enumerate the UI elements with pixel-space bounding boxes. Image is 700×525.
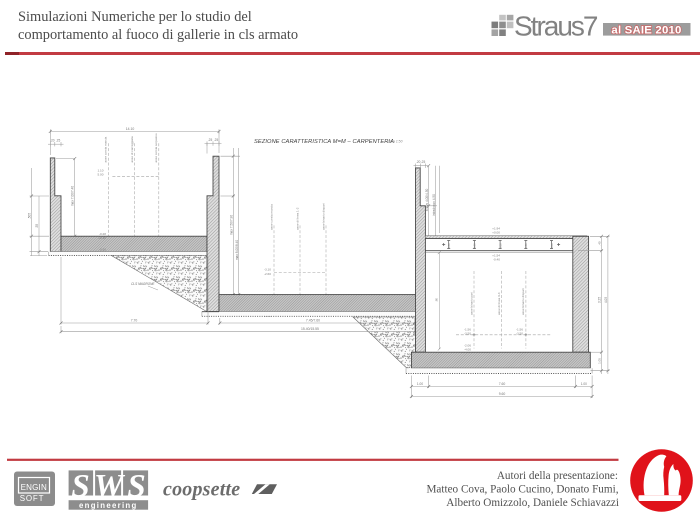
svg-text:.40: .40 <box>598 241 602 246</box>
svg-text:.55: .55 <box>35 224 39 229</box>
svg-text:1.00: 1.00 <box>417 382 423 386</box>
svg-text:Matteo Cova, Paolo Cucino, Don: Matteo Cova, Paolo Cucino, Donato Fumi, <box>426 484 618 496</box>
svg-text:.25: .25 <box>56 139 61 143</box>
svg-text:asse di linea 1-2: asse di linea 1-2 <box>295 207 299 230</box>
svg-text:asse binario pari: asse binario pari <box>469 292 473 315</box>
svg-text:al SAIE 2010: al SAIE 2010 <box>611 25 681 37</box>
svg-text:14.10: 14.10 <box>126 127 135 131</box>
svg-text:W: W <box>94 469 126 505</box>
svg-text:+0.00: +0.00 <box>492 230 500 234</box>
svg-text:scala 1:50: scala 1:50 <box>387 140 403 144</box>
svg-text:max 7.50/7.90: max 7.50/7.90 <box>229 215 233 235</box>
svg-text:.80: .80 <box>435 298 439 303</box>
svg-text:.25: .25 <box>214 138 219 142</box>
svg-text:scavo 4.00/4.50: scavo 4.00/4.50 <box>425 189 429 212</box>
svg-text:5.00: 5.00 <box>97 173 103 177</box>
svg-text:1.00: 1.00 <box>498 243 502 249</box>
svg-text:engineering: engineering <box>79 501 138 510</box>
svg-text:asse corsia sorpasso: asse corsia sorpasso <box>154 133 158 162</box>
svg-text:max 7.00/7.40: max 7.00/7.40 <box>71 186 75 206</box>
svg-text:ENGIN: ENGIN <box>21 483 47 492</box>
svg-text:-4.00: -4.00 <box>464 347 471 351</box>
svg-text:7.60: 7.60 <box>499 382 506 386</box>
svg-text:max 8.00/8.40: max 8.00/8.40 <box>235 240 239 260</box>
svg-text:1.00: 1.00 <box>473 243 477 249</box>
svg-text:7.45/7.60: 7.45/7.60 <box>306 318 320 322</box>
svg-text:CLS MAGRONE: CLS MAGRONE <box>131 282 155 286</box>
svg-text:SOFT: SOFT <box>20 494 45 503</box>
svg-text:.25: .25 <box>208 138 213 142</box>
svg-text:1.00: 1.00 <box>550 243 554 249</box>
svg-text:intradosso 4.50: intradosso 4.50 <box>432 194 436 216</box>
svg-text:1.00: 1.00 <box>524 243 528 249</box>
svg-text:S: S <box>127 469 145 505</box>
svg-text:-2.60: -2.60 <box>264 272 271 276</box>
svg-text:asse corsia marcia: asse corsia marcia <box>104 136 108 162</box>
svg-text:-3.50: -3.50 <box>516 331 523 335</box>
svg-text:1.00: 1.00 <box>447 243 451 249</box>
svg-text:1.00: 1.00 <box>581 382 587 386</box>
svg-text:coopsette: coopsette <box>163 479 240 501</box>
svg-text:S: S <box>71 469 89 505</box>
svg-text:SEZIONE CARATTERISTICA M=M –: SEZIONE CARATTERISTICA M=M – CARPENTERIA <box>254 139 394 145</box>
svg-text:9.60: 9.60 <box>499 392 506 396</box>
svg-text:Autori della presentazione:: Autori della presentazione: <box>497 470 618 482</box>
svg-text:4.05: 4.05 <box>604 297 608 303</box>
svg-text:Simulazioni Numeriche per lo s: Simulazioni Numeriche per lo studio del <box>18 9 252 25</box>
svg-text:-0.40: -0.40 <box>493 257 500 261</box>
svg-text:+0.30: +0.30 <box>98 236 106 240</box>
svg-text:15.40/15.55: 15.40/15.55 <box>301 327 319 331</box>
svg-text:.25: .25 <box>421 160 426 164</box>
svg-text:.505: .505 <box>28 213 32 219</box>
svg-text:1.05: 1.05 <box>598 358 602 364</box>
svg-text:.20: .20 <box>50 139 55 143</box>
svg-text:asse di carreggiata: asse di carreggiata <box>130 136 134 162</box>
svg-text:Alberto Omizzolo, Daniele Schi: Alberto Omizzolo, Daniele Schiavazzi <box>446 497 619 509</box>
svg-text:asse di linea 3-4: asse di linea 3-4 <box>497 292 501 315</box>
svg-text:asse corsia marcia: asse corsia marcia <box>269 204 273 230</box>
svg-text:7.70: 7.70 <box>131 318 138 322</box>
svg-text:asse binario dispari: asse binario dispari <box>321 203 325 230</box>
svg-text:comportamento al fuoco di gall: comportamento al fuoco di gallerie in cl… <box>18 27 298 43</box>
svg-text:3.25: 3.25 <box>598 297 602 303</box>
svg-text:-3.50: -3.50 <box>464 331 471 335</box>
svg-text:Straus7: Straus7 <box>514 11 598 42</box>
svg-text:asse binario dispari: asse binario dispari <box>521 288 525 315</box>
